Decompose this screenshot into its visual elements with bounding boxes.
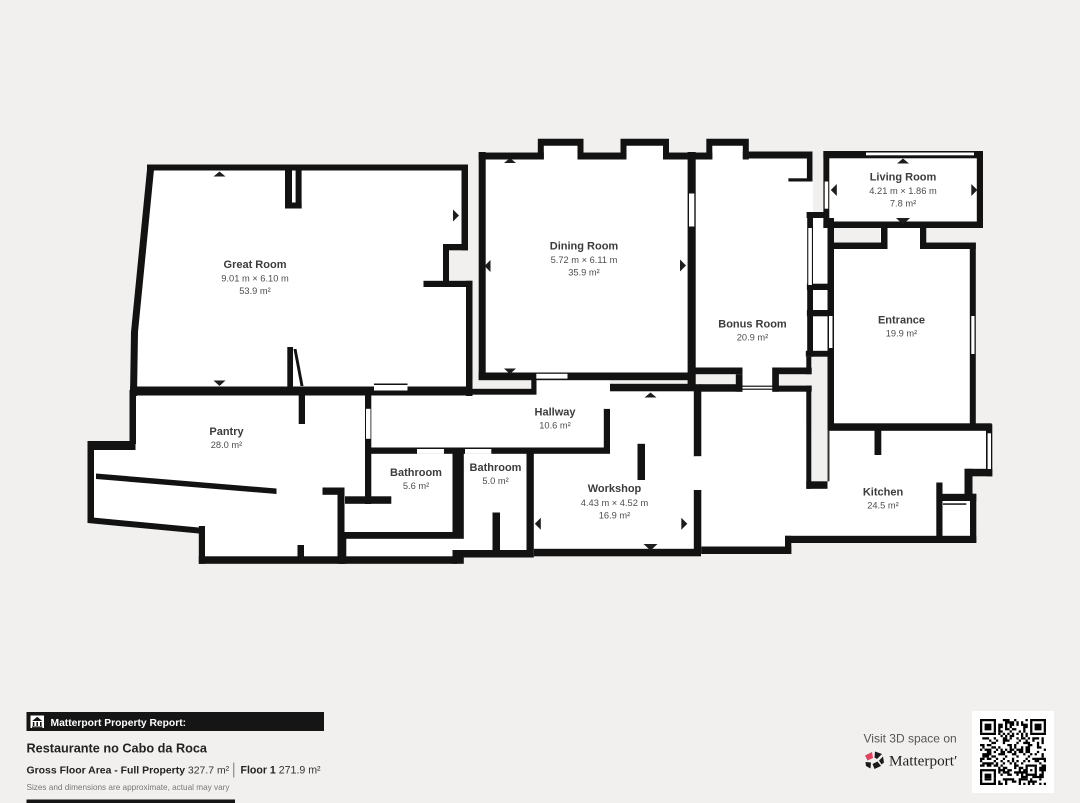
svg-text:16.9 m²: 16.9 m² <box>599 511 631 521</box>
svg-text:Workshop: Workshop <box>588 483 642 495</box>
svg-text:19.9 m²: 19.9 m² <box>886 329 918 339</box>
svg-text:9.01 m × 6.10 m: 9.01 m × 6.10 m <box>221 274 289 284</box>
svg-text:28.0 m²: 28.0 m² <box>211 440 243 450</box>
svg-text:Pantry: Pantry <box>209 426 244 438</box>
svg-text:Hallway: Hallway <box>535 407 577 419</box>
svg-text:5.6 m²: 5.6 m² <box>403 481 429 491</box>
svg-text:Great Room: Great Room <box>224 259 287 271</box>
svg-text:Kitchen: Kitchen <box>863 487 904 499</box>
svg-text:Living Room: Living Room <box>870 172 937 184</box>
svg-text:4.21 m × 1.86 m: 4.21 m × 1.86 m <box>869 186 937 196</box>
svg-text:Sizes and dimensions are appro: Sizes and dimensions are approximate, ac… <box>27 783 231 792</box>
svg-text:5.72 m × 6.11 m: 5.72 m × 6.11 m <box>551 255 618 265</box>
svg-text:7.8 m²: 7.8 m² <box>890 199 916 209</box>
svg-text:53.9 m²: 53.9 m² <box>239 286 271 296</box>
svg-text:Gross Floor Area - Full Proper: Gross Floor Area - Full Property 327.7 m… <box>27 766 230 777</box>
svg-text:Bathroom: Bathroom <box>470 462 522 474</box>
svg-text:Visit 3D space on: Visit 3D space on <box>864 732 957 746</box>
svg-text:Bonus Room: Bonus Room <box>718 319 787 331</box>
svg-text:Restaurante no Cabo da Roca: Restaurante no Cabo da Roca <box>27 742 208 756</box>
svg-text:Bathroom: Bathroom <box>390 467 442 479</box>
svg-text:24.5 m²: 24.5 m² <box>867 501 899 511</box>
svg-text:20.9 m²: 20.9 m² <box>737 333 769 343</box>
svg-text:Dining Room: Dining Room <box>550 241 619 253</box>
svg-text:35.9 m²: 35.9 m² <box>568 268 600 278</box>
svg-text:Matterport′: Matterport′ <box>889 753 957 770</box>
svg-text:10.6 m²: 10.6 m² <box>539 421 571 431</box>
svg-text:5.0 m²: 5.0 m² <box>482 476 508 486</box>
svg-text:Entrance: Entrance <box>878 315 925 327</box>
svg-text:Floor 1 271.9 m²: Floor 1 271.9 m² <box>241 765 322 777</box>
svg-text:Matterport Property Report:: Matterport Property Report: <box>51 718 187 729</box>
svg-text:4.43 m × 4.52 m: 4.43 m × 4.52 m <box>581 498 649 508</box>
